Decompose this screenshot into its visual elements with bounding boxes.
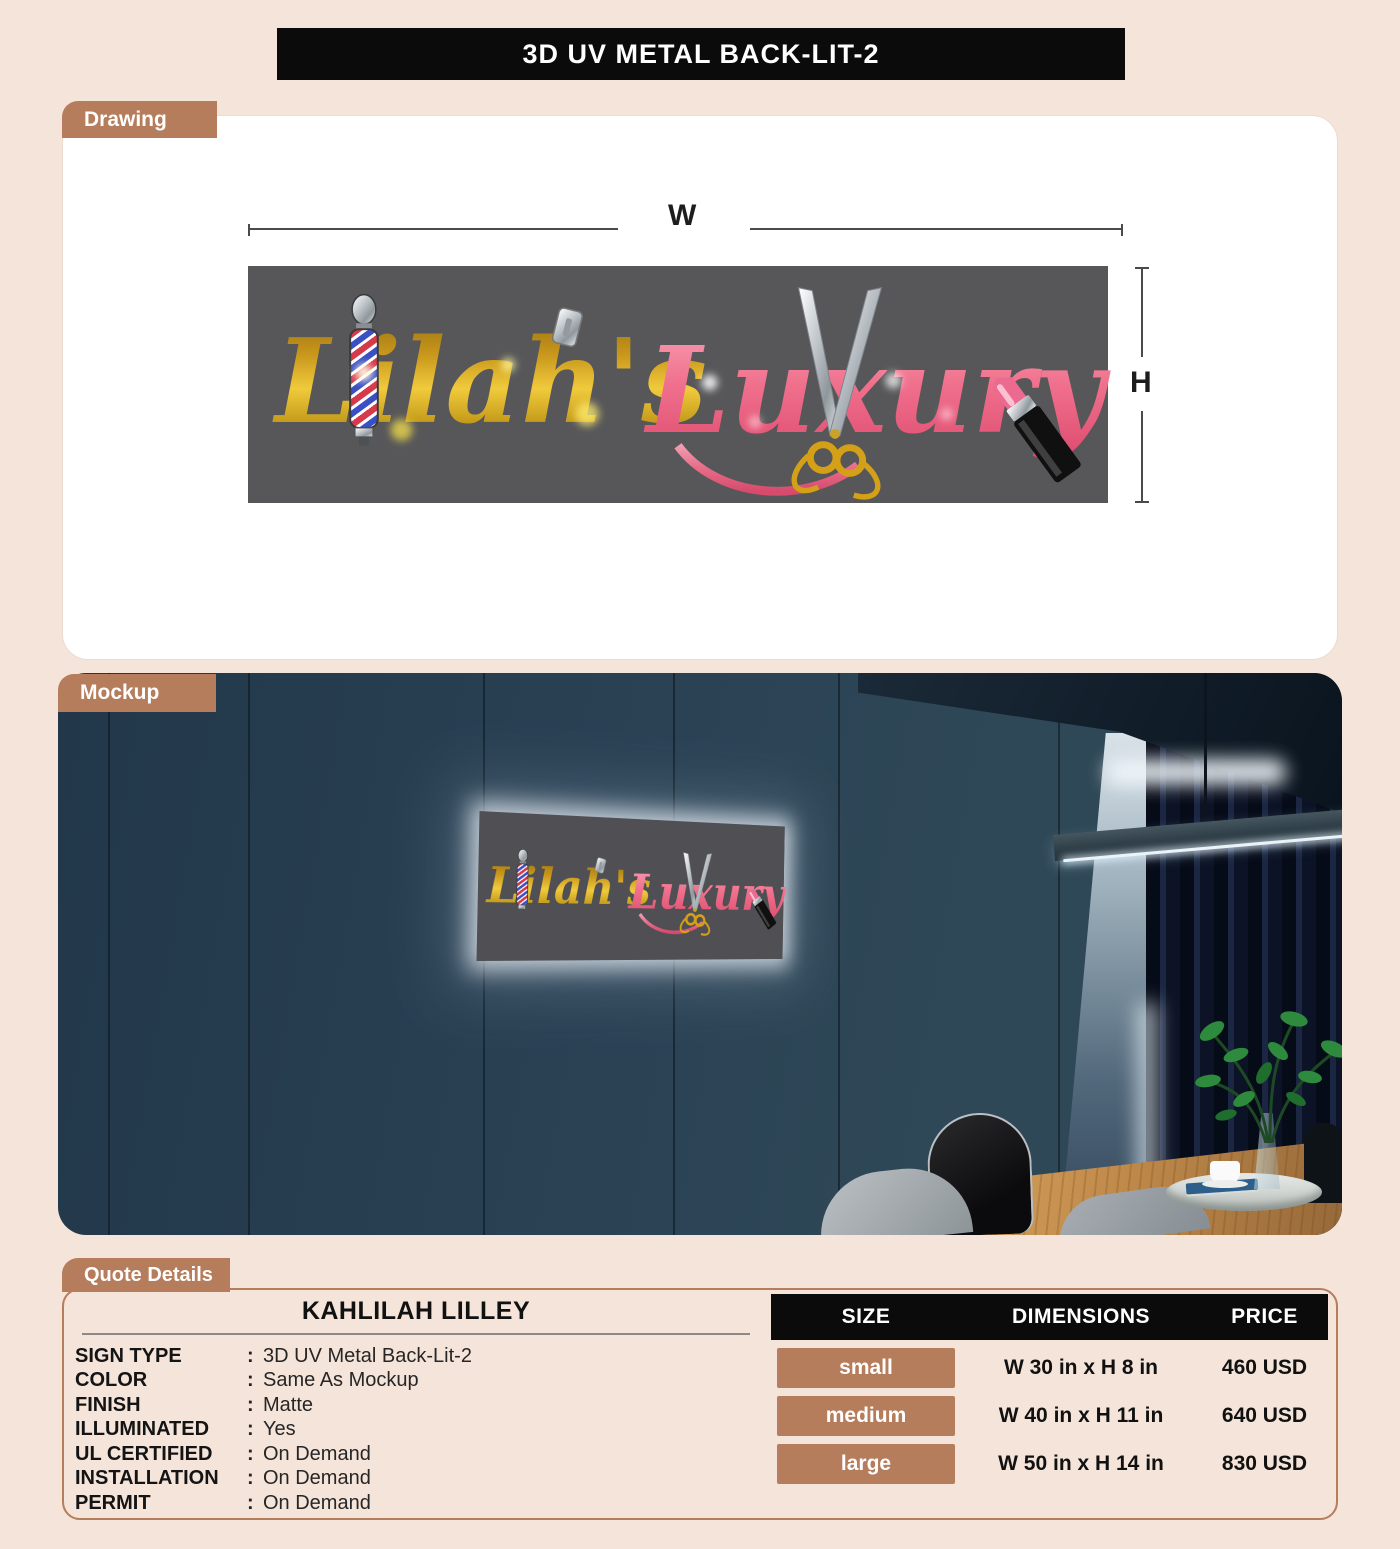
spec-row: UL CERTIFIED : On Demand	[75, 1442, 755, 1467]
width-dim-tick-right	[1121, 224, 1123, 236]
corner-wall-highlight	[1060, 733, 1148, 1235]
mockup-tab-label: Mockup	[80, 681, 159, 705]
spec-list: SIGN TYPE : 3D UV Metal Back-Lit-2 COLOR…	[75, 1344, 755, 1516]
spec-separator: :	[247, 1345, 263, 1368]
row-price: 460 USD	[1201, 1356, 1328, 1380]
row-dimensions: W 50 in x H 14 in	[961, 1452, 1201, 1476]
spec-value: Same As Mockup	[263, 1369, 419, 1392]
spec-label: SIGN TYPE	[75, 1345, 247, 1368]
pricing-header-dimensions: DIMENSIONS	[961, 1305, 1201, 1329]
sign-logo: Lilah's Luxury	[248, 266, 1108, 503]
width-dim-line-left	[248, 228, 618, 230]
spec-row: FINISH : Matte	[75, 1393, 755, 1418]
spec-separator: :	[247, 1418, 263, 1441]
page-title: 3D UV METAL BACK-LIT-2	[522, 39, 879, 70]
spec-label: INSTALLATION	[75, 1467, 247, 1490]
row-price: 640 USD	[1201, 1404, 1328, 1428]
wall-panel-seam	[248, 673, 250, 1235]
logo-word1-text: Lilah's	[484, 856, 651, 916]
height-dim-line-top	[1141, 267, 1143, 357]
cove-light	[1106, 759, 1286, 785]
page-title-bar: 3D UV METAL BACK-LIT-2	[277, 28, 1125, 80]
spec-value: Yes	[263, 1418, 296, 1441]
pricing-row-small: small W 30 in x H 8 in 460 USD	[771, 1348, 1328, 1388]
drawing-section-tab: Drawing	[62, 101, 217, 138]
spec-value: On Demand	[263, 1443, 371, 1466]
pendant-light-rod	[1204, 673, 1207, 841]
spec-row: PERMIT : On Demand	[75, 1491, 755, 1516]
spec-label: PERMIT	[75, 1492, 247, 1515]
spec-row: COLOR : Same As Mockup	[75, 1369, 755, 1394]
spec-value: Matte	[263, 1394, 313, 1417]
pricing-header-price: PRICE	[1201, 1305, 1328, 1329]
spec-row: SIGN TYPE : 3D UV Metal Back-Lit-2	[75, 1344, 755, 1369]
quote-sheet: { "page": { "title": "3D UV METAL BACK-L…	[0, 0, 1400, 1549]
pricing-row-large: large W 50 in x H 14 in 830 USD	[771, 1444, 1328, 1484]
row-dimensions: W 30 in x H 8 in	[961, 1356, 1201, 1380]
quote-tab-label: Quote Details	[84, 1264, 213, 1287]
spec-separator: :	[247, 1467, 263, 1490]
mockup-section-tab: Mockup	[58, 674, 216, 712]
wall-corner-edge	[1058, 673, 1060, 1235]
spec-label: FINISH	[75, 1394, 247, 1417]
spec-label: UL CERTIFIED	[75, 1443, 247, 1466]
wall-panel-seam	[838, 673, 840, 1235]
spec-separator: :	[247, 1492, 263, 1515]
coffee-cup	[1210, 1161, 1240, 1183]
height-dim-line-bottom	[1141, 411, 1143, 501]
customer-name-rule	[82, 1333, 750, 1335]
size-chip: large	[777, 1444, 955, 1484]
width-dim-line-right	[750, 228, 1123, 230]
spec-row: ILLUMINATED : Yes	[75, 1418, 755, 1443]
spec-value: On Demand	[263, 1467, 371, 1490]
pricing-table-header: SIZE DIMENSIONS PRICE	[771, 1294, 1328, 1340]
spec-row: INSTALLATION : On Demand	[75, 1467, 755, 1492]
logo-word1-text: Lilah's	[272, 314, 707, 450]
sign-drawing: Lilah's Luxury	[248, 266, 1108, 503]
spec-separator: :	[247, 1369, 263, 1392]
spec-value: 3D UV Metal Back-Lit-2	[263, 1345, 472, 1368]
wall-panel-seam	[108, 673, 110, 1235]
sign-logo-mockup: Lilah's Luxury	[476, 811, 784, 961]
size-chip: small	[777, 1348, 955, 1388]
row-dimensions: W 40 in x H 11 in	[961, 1404, 1201, 1428]
width-dim-tick-left	[248, 224, 250, 236]
width-dim-label: W	[668, 199, 696, 233]
spec-value: On Demand	[263, 1492, 371, 1515]
spec-label: COLOR	[75, 1369, 247, 1392]
pricing-header-size: SIZE	[771, 1305, 961, 1329]
height-dim-tick-bottom	[1135, 501, 1149, 503]
size-chip: medium	[777, 1396, 955, 1436]
pricing-table: SIZE DIMENSIONS PRICE small W 30 in x H …	[771, 1294, 1328, 1484]
drawing-tab-label: Drawing	[84, 108, 167, 132]
spec-separator: :	[247, 1443, 263, 1466]
sign-mockup: Lilah's Luxury	[476, 811, 784, 961]
pricing-row-medium: medium W 40 in x H 11 in 640 USD	[771, 1396, 1328, 1436]
mockup-scene: Lilah's Luxury	[58, 673, 1342, 1235]
height-dim-label: H	[1130, 366, 1152, 400]
spec-separator: :	[247, 1394, 263, 1417]
quote-details-tab: Quote Details	[62, 1258, 230, 1292]
drawing-card: W Lilah's Luxury	[62, 115, 1338, 660]
spec-label: ILLUMINATED	[75, 1418, 247, 1441]
plant-icon	[1178, 1003, 1342, 1143]
row-price: 830 USD	[1201, 1452, 1328, 1476]
customer-name: KAHLILAH LILLEY	[82, 1297, 750, 1326]
